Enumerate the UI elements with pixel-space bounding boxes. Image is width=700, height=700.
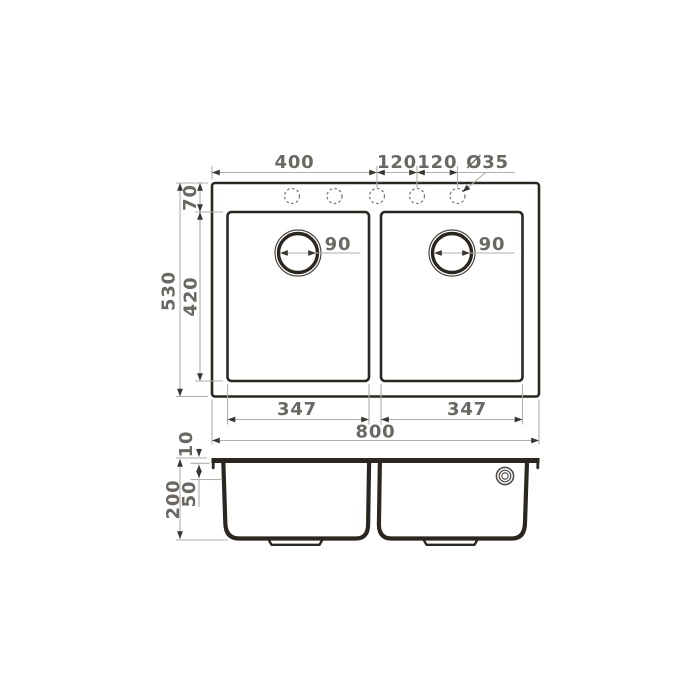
faucet-hole-4 [410,189,425,204]
dim-label-200: 200 [163,480,184,520]
dim-label-120a: 120 [377,152,417,173]
dim-label-10: 10 [176,431,197,458]
dim-label-400: 400 [275,152,315,173]
top-view [212,183,539,397]
faucet-hole-1 [285,189,300,204]
dim-label-120b: 120 [417,152,457,173]
dim-label-70: 70 [180,184,201,211]
dim-label-800: 800 [356,422,396,443]
sink-technical-drawing: 400 120 120 Ø35 70 530 420 90 90 347 [0,0,700,700]
dim-label-90-left: 90 [325,234,352,255]
side-view-dimensions: 10 50 200 [163,431,228,540]
overflow-icon [496,467,513,484]
side-bowl-left [223,461,369,539]
dim-label-420: 420 [181,277,202,317]
faucet-hole-3 [370,189,385,204]
dim-label-347-right: 347 [447,399,487,420]
overflow-ring-mid [499,470,511,482]
side-view [212,461,540,545]
faucet-hole-5 [450,189,465,204]
dim-label-90-right: 90 [479,234,506,255]
sink-outer-rim [212,183,539,397]
dim-label-hole-dia: Ø35 [466,152,509,173]
drawing-canvas: 400 120 120 Ø35 70 530 420 90 90 347 [0,0,700,700]
faucet-holes [285,189,466,204]
top-view-dimensions: 400 120 120 Ø35 70 530 420 90 90 347 [159,152,540,445]
dim-label-530: 530 [159,271,180,311]
dim-label-347-left: 347 [277,399,317,420]
faucet-hole-2 [327,189,342,204]
overflow-ring-inner [502,473,508,479]
